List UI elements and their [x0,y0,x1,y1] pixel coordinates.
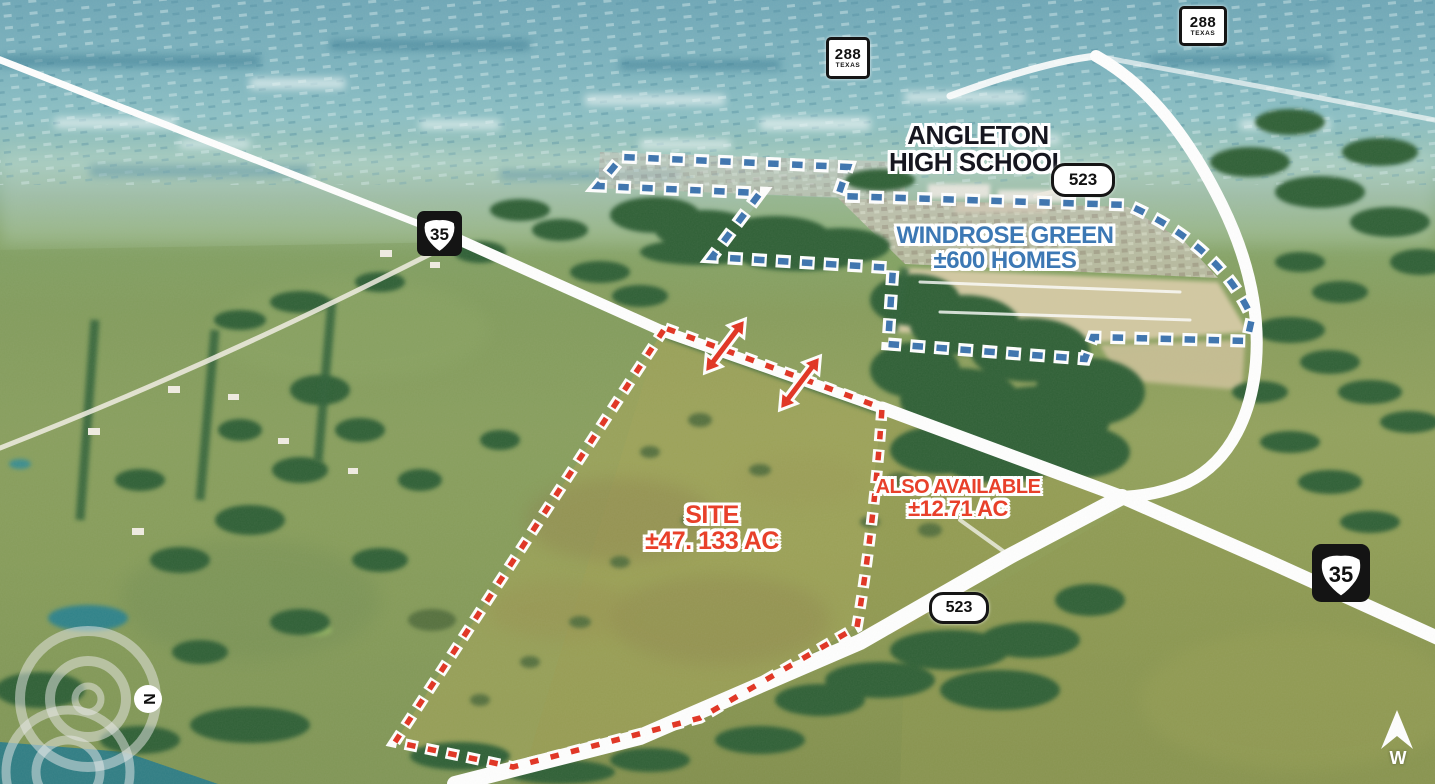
west-indicator: W [1377,748,1419,769]
windrose-green-label: WINDROSE GREEN ±600 HOMES [880,224,1130,274]
us-35-shield-upper: 35 [417,211,462,256]
fm-523-shield-upper: 523 [1051,163,1115,197]
grain-overlay [0,0,1435,784]
aerial-map: ANGLETON HIGH SCHOOL WINDROSE GREEN ±600… [0,0,1435,784]
tx-288-shield-top-right: 288 TEXAS [1179,6,1227,46]
site-label-line1: SITE [685,501,739,529]
shield-number: 35 [1312,544,1370,602]
also-label-line2: ±12.71 AC [860,498,1056,521]
shield-number: 288 [1190,15,1217,30]
windrose-label-line1: WINDROSE GREEN [896,222,1113,249]
shield-number: 35 [417,211,462,256]
us-35-shield-lower: 35 [1312,544,1370,602]
also-available-label: ALSO AVAILABLE ±12.71 AC [860,477,1056,521]
shield-number: 288 [835,47,862,62]
shield-number: 523 [1069,170,1097,190]
windrose-label-line2: ±600 HOMES [880,249,1130,274]
shield-number: 523 [946,599,973,617]
shield-state: TEXAS [1191,30,1216,38]
also-label-line1: ALSO AVAILABLE [876,476,1041,498]
school-label-line1: ANGLETON [907,120,1048,150]
tx-288-shield-inner: 288 TEXAS [826,37,870,79]
north-letter: N [139,693,157,705]
aerial-photo-artwork [0,0,1435,784]
west-letter: W [1390,748,1407,768]
site-label-line2: ±47. 133 AC [612,528,812,554]
shield-state: TEXAS [836,62,861,70]
north-indicator: N [134,685,162,713]
site-label: SITE ±47. 133 AC [612,502,812,554]
fm-523-shield-lower: 523 [929,592,989,624]
